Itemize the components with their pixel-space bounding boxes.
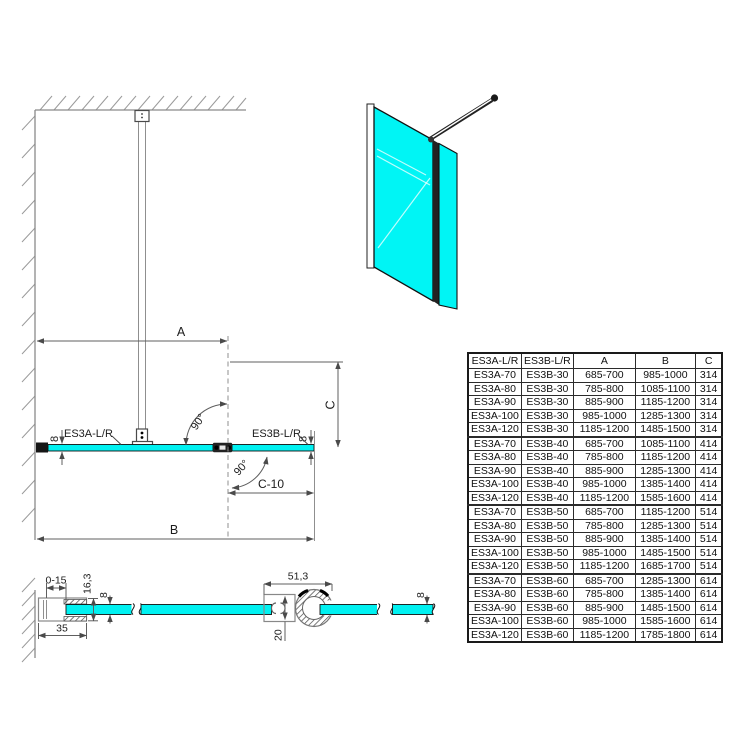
table-cell: 1385-1400 bbox=[635, 478, 695, 492]
table-cell: 1585-1600 bbox=[635, 491, 695, 505]
table-cell: 985-1000 bbox=[573, 478, 635, 492]
table-cell: 1185-1200 bbox=[573, 628, 635, 642]
table-cell: 414 bbox=[695, 478, 722, 492]
dim-label-16-3: 16,3 bbox=[82, 573, 94, 594]
table-cell: ES3B-30 bbox=[521, 382, 573, 396]
table-row: ES3A-90ES3B-60885-9001485-1500614 bbox=[468, 601, 722, 615]
table-cell: 614 bbox=[695, 601, 722, 615]
column-header: C bbox=[695, 353, 722, 369]
detail-wall-hatch bbox=[22, 578, 35, 662]
table-cell: 1285-1300 bbox=[635, 574, 695, 588]
table-cell: 785-800 bbox=[573, 382, 635, 396]
table-cell: ES3A-120 bbox=[468, 491, 521, 505]
wall-profile-section: 0-15 16,3 8 35 bbox=[22, 573, 272, 662]
leader-panel-main bbox=[112, 436, 121, 445]
table-cell: 1385-1400 bbox=[635, 533, 695, 547]
table-row: ES3A-120ES3B-301185-12001485-1500314 bbox=[468, 423, 722, 437]
table-cell: 614 bbox=[695, 588, 722, 602]
table-cell: 414 bbox=[695, 491, 722, 505]
table-cell: ES3B-40 bbox=[521, 437, 573, 451]
table-cell: 1085-1100 bbox=[635, 437, 695, 451]
wall-profile-plan bbox=[36, 443, 48, 453]
table-cell: ES3B-60 bbox=[521, 574, 573, 588]
table-cell: ES3A-90 bbox=[468, 533, 521, 547]
table-cell: 614 bbox=[695, 628, 722, 642]
support-bar bbox=[133, 111, 153, 451]
table-cell: ES3B-50 bbox=[521, 546, 573, 560]
table-cell: 1685-1700 bbox=[635, 560, 695, 574]
iso-connector-profile bbox=[433, 140, 439, 305]
label-panel-main: ES3A-L/R bbox=[64, 428, 113, 440]
table-cell: 314 bbox=[695, 409, 722, 423]
column-header: B bbox=[635, 353, 695, 369]
dimension-a: A bbox=[37, 325, 227, 341]
connector-section: 51,3 20 8 bbox=[264, 571, 435, 642]
table-row: ES3A-80ES3B-30785-8001085-1100314 bbox=[468, 382, 722, 396]
connector-clamp-right bbox=[281, 603, 286, 614]
table-cell: ES3B-40 bbox=[521, 478, 573, 492]
table-cell: ES3A-80 bbox=[468, 451, 521, 465]
dim-label-b: B bbox=[170, 523, 178, 537]
table-cell: ES3A-70 bbox=[468, 505, 521, 519]
dim-label-8-left: 8 bbox=[49, 436, 61, 442]
table-cell: 985-1000 bbox=[573, 409, 635, 423]
table-cell: 314 bbox=[695, 369, 722, 383]
column-header: A bbox=[573, 353, 635, 369]
table-row: ES3A-80ES3B-40785-8001185-1200414 bbox=[468, 451, 722, 465]
table-cell: 1385-1400 bbox=[635, 588, 695, 602]
table-row: ES3A-120ES3B-501185-12001685-1700514 bbox=[468, 560, 722, 574]
table-cell: 614 bbox=[695, 574, 722, 588]
table-cell: 1185-1200 bbox=[573, 560, 635, 574]
dim-label-8-detail-left: 8 bbox=[98, 592, 110, 598]
table-cell: 885-900 bbox=[573, 396, 635, 410]
table-cell: 514 bbox=[695, 546, 722, 560]
table-cell: 314 bbox=[695, 423, 722, 437]
plan-view: A B C C-10 8 8 bbox=[22, 96, 343, 541]
table-cell: ES3B-40 bbox=[521, 451, 573, 465]
table-cell: 1185-1200 bbox=[635, 396, 695, 410]
table-cell: ES3B-40 bbox=[521, 464, 573, 478]
iso-view bbox=[367, 94, 498, 309]
table-cell: 985-1000 bbox=[573, 615, 635, 629]
dimension-c10: C-10 bbox=[229, 477, 314, 493]
iso-support-rod bbox=[428, 94, 498, 142]
table-cell: ES3B-30 bbox=[521, 423, 573, 437]
spec-table-head: ES3A-L/RES3B-L/RABC bbox=[468, 353, 722, 369]
iso-glass-panel-b bbox=[439, 144, 457, 310]
dim-label-51-3: 51,3 bbox=[288, 571, 309, 583]
table-cell: 885-900 bbox=[573, 464, 635, 478]
angle-label-lower: 90° bbox=[232, 458, 252, 478]
table-cell: 414 bbox=[695, 464, 722, 478]
detail-glass-seg2 bbox=[141, 605, 272, 615]
table-cell: 1485-1500 bbox=[635, 423, 695, 437]
table-cell: ES3A-120 bbox=[468, 560, 521, 574]
table-cell: 1185-1200 bbox=[635, 505, 695, 519]
spec-table-body: ES3A-70ES3B-30685-700985-1000314ES3A-80E… bbox=[468, 369, 722, 643]
table-cell: 314 bbox=[695, 396, 722, 410]
table-cell: 1285-1300 bbox=[635, 464, 695, 478]
iso-glass-panel-a bbox=[374, 107, 433, 301]
dimension-b: B bbox=[37, 523, 314, 539]
table-cell: 885-900 bbox=[573, 533, 635, 547]
glass-panel-b bbox=[232, 445, 314, 452]
label-panel-side: ES3B-L/R bbox=[252, 428, 301, 440]
table-row: ES3A-120ES3B-401185-12001585-1600414 bbox=[468, 491, 722, 505]
table-cell: 514 bbox=[695, 519, 722, 533]
table-cell: 414 bbox=[695, 437, 722, 451]
table-row: ES3A-100ES3B-50985-10001485-1500514 bbox=[468, 546, 722, 560]
ceiling-hatch bbox=[40, 96, 246, 110]
table-row: ES3A-70ES3B-40685-7001085-1100414 bbox=[468, 437, 722, 451]
pivot-connector-plan bbox=[213, 443, 232, 453]
detail-glass-seg1 bbox=[66, 605, 133, 615]
table-cell: ES3A-70 bbox=[468, 369, 521, 383]
table-cell: 985-1000 bbox=[573, 546, 635, 560]
ceiling-bracket bbox=[135, 111, 149, 122]
table-row: ES3A-70ES3B-50685-7001185-1200514 bbox=[468, 505, 722, 519]
table-cell: 685-700 bbox=[573, 369, 635, 383]
table-cell: 1785-1800 bbox=[635, 628, 695, 642]
angle-90-upper: 90° bbox=[186, 404, 227, 445]
table-cell: 514 bbox=[695, 533, 722, 547]
table-cell: ES3B-30 bbox=[521, 409, 573, 423]
table-row: ES3A-90ES3B-40885-9001285-1300414 bbox=[468, 464, 722, 478]
table-cell: 314 bbox=[695, 382, 722, 396]
table-cell: 614 bbox=[695, 615, 722, 629]
table-row: ES3A-80ES3B-50785-8001285-1300514 bbox=[468, 519, 722, 533]
detail-glass-seg4 bbox=[393, 605, 434, 615]
dim-label-a: A bbox=[177, 325, 186, 339]
table-cell: 1285-1300 bbox=[635, 409, 695, 423]
table-row: ES3A-100ES3B-60985-10001585-1600614 bbox=[468, 615, 722, 629]
column-header: ES3B-L/R bbox=[521, 353, 573, 369]
wall-hatch bbox=[22, 116, 35, 522]
table-cell: ES3B-60 bbox=[521, 628, 573, 642]
table-cell: ES3B-30 bbox=[521, 396, 573, 410]
table-cell: 1285-1300 bbox=[635, 519, 695, 533]
table-row: ES3A-80ES3B-60785-8001385-1400614 bbox=[468, 588, 722, 602]
table-cell: 685-700 bbox=[573, 437, 635, 451]
table-cell: 1485-1500 bbox=[635, 601, 695, 615]
table-cell: ES3A-70 bbox=[468, 437, 521, 451]
table-cell: 785-800 bbox=[573, 519, 635, 533]
spec-table: ES3A-L/RES3B-L/RABC ES3A-70ES3B-30685-70… bbox=[467, 352, 723, 643]
table-cell: 785-800 bbox=[573, 588, 635, 602]
table-row: ES3A-120ES3B-601185-12001785-1800614 bbox=[468, 628, 722, 642]
table-cell: ES3B-60 bbox=[521, 615, 573, 629]
dim-label-8-detail-right: 8 bbox=[415, 592, 427, 598]
angle-label-upper: 90° bbox=[189, 412, 208, 433]
dim-label-c: C bbox=[324, 400, 338, 409]
table-row: ES3A-70ES3B-30685-700985-1000314 bbox=[468, 369, 722, 383]
table-cell: ES3B-60 bbox=[521, 601, 573, 615]
table-cell: 1085-1100 bbox=[635, 382, 695, 396]
table-cell: 785-800 bbox=[573, 451, 635, 465]
table-cell: ES3B-60 bbox=[521, 588, 573, 602]
table-cell: ES3B-40 bbox=[521, 491, 573, 505]
table-header-row: ES3A-L/RES3B-L/RABC bbox=[468, 353, 722, 369]
dim-label-20: 20 bbox=[273, 629, 285, 641]
table-cell: ES3B-50 bbox=[521, 560, 573, 574]
table-cell: 414 bbox=[695, 451, 722, 465]
table-cell: ES3A-90 bbox=[468, 464, 521, 478]
table-cell: ES3A-100 bbox=[468, 409, 521, 423]
table-cell: 685-700 bbox=[573, 505, 635, 519]
table-cell: ES3A-80 bbox=[468, 588, 521, 602]
table-cell: ES3A-80 bbox=[468, 519, 521, 533]
table-cell: ES3A-120 bbox=[468, 423, 521, 437]
iso-wall-profile bbox=[367, 104, 374, 268]
table-cell: 1185-1200 bbox=[573, 491, 635, 505]
table-row: ES3A-100ES3B-30985-10001285-1300314 bbox=[468, 409, 722, 423]
table-cell: ES3B-50 bbox=[521, 505, 573, 519]
table-cell: 885-900 bbox=[573, 601, 635, 615]
table-cell: 1485-1500 bbox=[635, 546, 695, 560]
table-row: ES3A-100ES3B-40985-10001385-1400414 bbox=[468, 478, 722, 492]
bar-glass-bracket bbox=[137, 429, 148, 442]
table-cell: 1585-1600 bbox=[635, 615, 695, 629]
table-cell: ES3B-30 bbox=[521, 369, 573, 383]
table-cell: 685-700 bbox=[573, 574, 635, 588]
table-cell: ES3A-70 bbox=[468, 574, 521, 588]
table-cell: ES3B-50 bbox=[521, 533, 573, 547]
table-cell: ES3A-100 bbox=[468, 615, 521, 629]
table-cell: 514 bbox=[695, 505, 722, 519]
table-row: ES3A-90ES3B-50885-9001385-1400514 bbox=[468, 533, 722, 547]
table-cell: 1185-1200 bbox=[635, 451, 695, 465]
table-cell: 1185-1200 bbox=[573, 423, 635, 437]
table-cell: ES3B-50 bbox=[521, 519, 573, 533]
table-cell: 514 bbox=[695, 560, 722, 574]
connector-clamp-left bbox=[271, 603, 276, 614]
profile-clamp-top bbox=[64, 600, 87, 605]
table-cell: ES3A-100 bbox=[468, 546, 521, 560]
table-cell: 985-1000 bbox=[635, 369, 695, 383]
table-row: ES3A-70ES3B-60685-7001285-1300614 bbox=[468, 574, 722, 588]
table-cell: ES3A-100 bbox=[468, 478, 521, 492]
dim-label-c10: C-10 bbox=[258, 477, 284, 491]
dim-label-0-15: 0-15 bbox=[45, 575, 66, 587]
dimension-35: 35 bbox=[39, 623, 87, 640]
column-header: ES3A-L/R bbox=[468, 353, 521, 369]
glass-panel-a bbox=[48, 445, 213, 452]
table-cell: ES3A-120 bbox=[468, 628, 521, 642]
table-cell: ES3A-90 bbox=[468, 601, 521, 615]
table-cell: ES3A-80 bbox=[468, 382, 521, 396]
profile-clamp-bottom bbox=[64, 617, 87, 622]
dim-label-35: 35 bbox=[56, 623, 68, 635]
table-row: ES3A-90ES3B-30885-9001185-1200314 bbox=[468, 396, 722, 410]
table-cell: ES3A-90 bbox=[468, 396, 521, 410]
detail-glass-seg3 bbox=[320, 605, 378, 615]
